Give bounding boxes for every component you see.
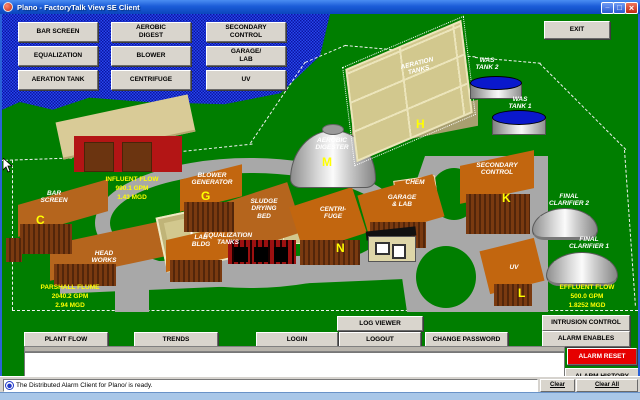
clear-all-button[interactable]: Clear All xyxy=(576,379,638,392)
blower-generator-label: BLOWER GENERATOR xyxy=(184,172,240,187)
change-password-button[interactable]: CHANGE PASSWORD xyxy=(425,332,508,347)
lab-bldg-label: LAB BLDG xyxy=(178,234,224,249)
intrusion-control-button[interactable]: INTRUSION CONTROL xyxy=(542,315,630,331)
parshall-flume-readout: PARSHALL FLUME 2040.2 GPM 2.94 MGD xyxy=(18,284,122,310)
boundary-line xyxy=(12,160,13,310)
marker-g: G xyxy=(201,190,210,202)
chem-label: CHEM xyxy=(397,179,433,186)
login-button[interactable]: LOGIN xyxy=(256,332,338,347)
effluent-flow-readout: EFFLUENT FLOW 500.0 GPM 1.8252 MGD xyxy=(550,284,624,310)
influent-flow-readout: INFLUENT FLOW 990.1 GPM 1.43 MGD xyxy=(84,176,180,202)
sludge-bed-door xyxy=(274,247,288,262)
secondary-control-label: SECONDARY CONTROL xyxy=(468,162,526,177)
nav-button-garage-lab[interactable]: GARAGE/ LAB xyxy=(206,46,286,66)
final-clarifier-2-label: FINAL CLARIFIER 2 xyxy=(538,193,600,208)
status-bar: The Distributed Alarm Client for Plano/ … xyxy=(0,376,640,393)
status-message: The Distributed Alarm Client for Plano/ … xyxy=(16,382,152,389)
head-works-label: HEAD WORKS xyxy=(78,250,130,265)
window-title: Plano - FactoryTalk View SE Client xyxy=(17,3,140,12)
garage-label: GARAGE & LAB xyxy=(376,194,428,209)
marker-k: K xyxy=(502,192,511,204)
lab-bldg-front xyxy=(170,260,222,282)
marker-m: M xyxy=(322,156,332,168)
was-tank-1-top xyxy=(492,110,546,125)
boundary-line xyxy=(539,63,626,150)
aeration-tanks xyxy=(345,20,472,162)
sludge-bed-door xyxy=(254,247,268,262)
grass-island xyxy=(416,246,476,308)
barn-door xyxy=(84,142,114,172)
nav-button-centrifuge[interactable]: CENTRIFUGE xyxy=(111,70,191,90)
bar-screen-annex xyxy=(6,238,22,262)
app-icon xyxy=(3,2,13,12)
marker-l: L xyxy=(518,287,525,299)
nav-button-secondary-control[interactable]: SECONDARY CONTROL xyxy=(206,22,286,42)
final-clarifier-1 xyxy=(546,252,618,286)
centrifuge-front xyxy=(300,240,360,265)
bar-screen-label: BAR SCREEN xyxy=(24,190,84,205)
uv-front xyxy=(494,284,532,306)
window-bottom-edge xyxy=(0,392,640,400)
was-tank-2-top xyxy=(470,76,522,90)
close-button[interactable] xyxy=(625,2,638,14)
sludge-bed-label: SLUDGE DRYING BED xyxy=(238,198,290,220)
uv-label: UV xyxy=(503,264,525,271)
aerobic-digester-cap xyxy=(322,124,344,135)
log-viewer-button[interactable]: LOG VIEWER xyxy=(337,316,423,331)
boundary-line xyxy=(624,150,636,306)
bar-screen-front xyxy=(20,224,72,254)
aerobic-digester-label: AEROBIC DIGESTER xyxy=(300,137,364,152)
status-message-field: The Distributed Alarm Client for Plano/ … xyxy=(3,379,538,392)
sludge-bed-door xyxy=(234,247,248,262)
marker-c: C xyxy=(36,214,45,226)
head-works-front xyxy=(54,264,116,286)
exit-button[interactable]: EXIT xyxy=(544,21,610,39)
title-bar[interactable]: Plano - FactoryTalk View SE Client xyxy=(0,0,640,14)
clear-button[interactable]: Clear xyxy=(540,379,575,392)
marker-h: H xyxy=(416,118,425,130)
nav-button-equalization[interactable]: EQUALIZATION xyxy=(18,46,98,66)
nav-button-aeration-tank[interactable]: AERATION TANK xyxy=(18,70,98,90)
garage-house xyxy=(368,236,416,262)
house-window xyxy=(375,242,390,255)
nav-button-uv[interactable]: UV xyxy=(206,70,286,90)
window-left-edge xyxy=(0,14,2,392)
house-window xyxy=(392,244,406,259)
secondary-control-front xyxy=(466,194,530,234)
barn-body xyxy=(74,136,182,172)
logout-button[interactable]: LOGOUT xyxy=(339,332,421,347)
barn-door xyxy=(122,142,152,172)
mouse-cursor xyxy=(3,158,13,173)
marker-n: N xyxy=(336,242,345,254)
was-tank-1-label: WAS TANK 1 xyxy=(500,96,540,111)
final-clarifier-1-label: FINAL CLARIFIER 1 xyxy=(558,236,620,251)
nav-button-bar-screen[interactable]: BAR SCREEN xyxy=(18,22,98,42)
alarm-reset-button[interactable]: ALARM RESET xyxy=(567,348,637,365)
nav-button-blower[interactable]: BLOWER xyxy=(111,46,191,66)
was-tank-2-label: WAS TANK 2 xyxy=(468,57,506,72)
alarm-enables-button[interactable]: ALARM ENABLES xyxy=(542,331,630,347)
alarm-bell-icon xyxy=(5,381,14,390)
blower-generator-front xyxy=(184,202,234,232)
centrifuge-label: CENTRI- FUGE xyxy=(310,206,356,221)
nav-button-aerobic-digest[interactable]: AEROBIC DIGEST xyxy=(111,22,191,42)
scada-window: BAR SCREEN C HEAD WORKS EQUALIZATION TAN… xyxy=(0,0,640,400)
